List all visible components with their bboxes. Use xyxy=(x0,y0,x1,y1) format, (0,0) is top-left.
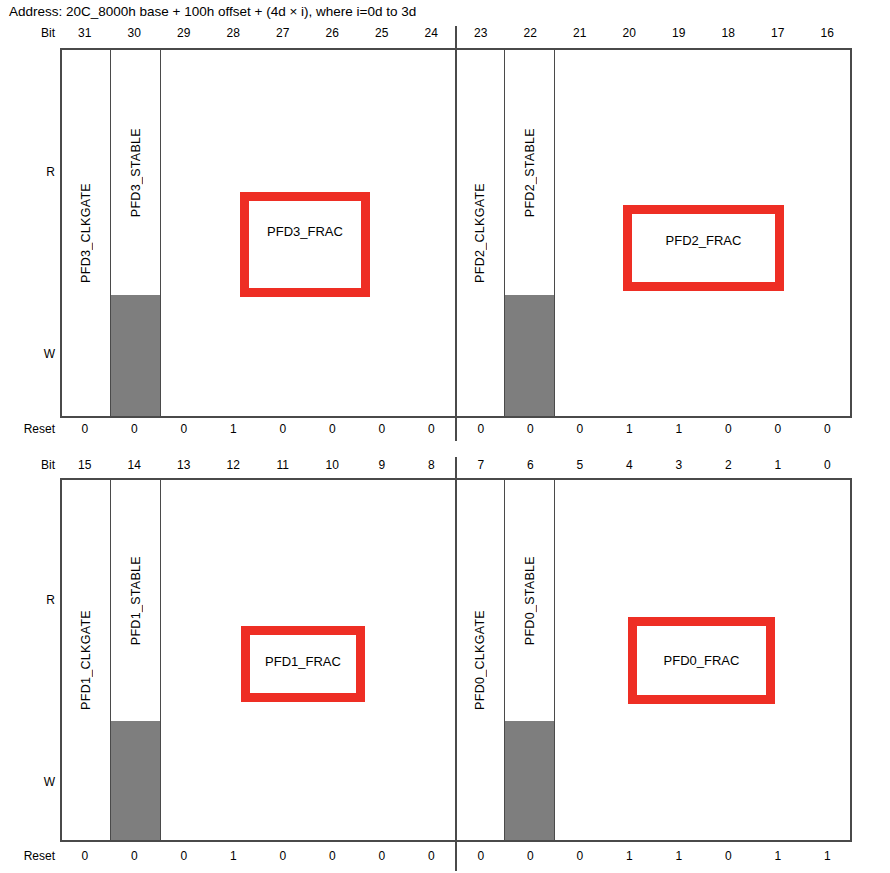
reset-row-label: Reset xyxy=(0,421,55,437)
reset-value: 0 xyxy=(60,848,110,864)
bit-number: 16 xyxy=(803,25,853,41)
register-bitfield-diagram: Address: 20C_8000h base + 100h offset + … xyxy=(0,0,890,873)
halfword-divider-upper xyxy=(455,26,457,441)
reset-value: 1 xyxy=(753,848,803,864)
reset-value: 1 xyxy=(803,848,853,864)
bit-number: 9 xyxy=(357,457,407,473)
clkgate-field-label: PFD1_CLKGATE xyxy=(79,610,93,710)
reset-value: 0 xyxy=(407,421,457,437)
reset-value: 0 xyxy=(159,421,209,437)
write-row-label: W xyxy=(0,347,55,361)
stable-cell: PFD1_STABLE xyxy=(111,480,161,840)
bit-number: 21 xyxy=(555,25,605,41)
address-line: Address: 20C_8000h base + 100h offset + … xyxy=(9,4,416,20)
bit-number: 7 xyxy=(456,457,506,473)
write-disabled-area xyxy=(111,721,160,840)
reset-value: 0 xyxy=(506,848,556,864)
reset-value: 0 xyxy=(555,848,605,864)
reset-value: 0 xyxy=(506,421,556,437)
reset-value: 0 xyxy=(456,421,506,437)
bit-number: 0 xyxy=(803,457,853,473)
register-half-pfd3: PFD3_CLKGATE PFD3_STABLE PFD3_FRAC xyxy=(62,50,456,416)
bit-number: 24 xyxy=(407,25,457,41)
bit-number: 4 xyxy=(605,457,655,473)
halfword-divider-lower xyxy=(455,457,457,871)
reset-value: 1 xyxy=(605,421,655,437)
reset-value: 0 xyxy=(407,848,457,864)
reset-value: 0 xyxy=(456,848,506,864)
frac-field-label: PFD1_FRAC xyxy=(265,654,341,669)
frac-field-area: PFD3_FRAC xyxy=(161,50,456,416)
read-row-label: R xyxy=(0,165,55,179)
bit-number: 23 xyxy=(456,25,506,41)
clkgate-field-label: PFD0_CLKGATE xyxy=(473,610,487,710)
stable-read-area: PFD1_STABLE xyxy=(111,480,160,721)
bit-number: 1 xyxy=(753,457,803,473)
register-half-pfd0: PFD0_CLKGATE PFD0_STABLE PFD0_FRAC xyxy=(456,480,850,840)
frac-highlight-box: PFD3_FRAC xyxy=(240,192,370,297)
reset-value: 0 xyxy=(357,848,407,864)
bit-number: 6 xyxy=(506,457,556,473)
bit-number: 28 xyxy=(209,25,259,41)
bit-row-label: Bit xyxy=(0,457,55,473)
reset-value: 0 xyxy=(110,421,160,437)
reset-value: 1 xyxy=(209,848,259,864)
stable-read-area: PFD2_STABLE xyxy=(505,50,554,295)
bit-number: 8 xyxy=(407,457,457,473)
bit-number: 11 xyxy=(258,457,308,473)
bit-number: 2 xyxy=(704,457,754,473)
frac-field-label: PFD3_FRAC xyxy=(267,224,343,239)
bit-number: 19 xyxy=(654,25,704,41)
bit-number: 3 xyxy=(654,457,704,473)
bit-number: 27 xyxy=(258,25,308,41)
frac-field-label: PFD2_FRAC xyxy=(666,233,742,248)
reset-value: 0 xyxy=(258,421,308,437)
reset-value: 0 xyxy=(803,421,853,437)
register-half-pfd2: PFD2_CLKGATE PFD2_STABLE PFD2_FRAC xyxy=(456,50,850,416)
frac-field-label: PFD0_FRAC xyxy=(664,653,740,668)
clkgate-field-label: PFD2_CLKGATE xyxy=(473,183,487,283)
reset-value: 0 xyxy=(60,421,110,437)
stable-cell: PFD3_STABLE xyxy=(111,50,161,416)
bit-number: 20 xyxy=(605,25,655,41)
stable-cell: PFD2_STABLE xyxy=(505,50,555,416)
frac-field-area: PFD0_FRAC xyxy=(555,480,850,840)
register-half-pfd1: PFD1_CLKGATE PFD1_STABLE PFD1_FRAC xyxy=(62,480,456,840)
bit-number: 17 xyxy=(753,25,803,41)
reset-value: 1 xyxy=(654,848,704,864)
clkgate-field-label: PFD3_CLKGATE xyxy=(79,183,93,283)
reset-value: 0 xyxy=(357,421,407,437)
stable-read-area: PFD3_STABLE xyxy=(111,50,160,295)
clkgate-cell: PFD0_CLKGATE xyxy=(456,480,505,840)
reset-value: 0 xyxy=(704,848,754,864)
stable-field-label: PFD0_STABLE xyxy=(523,556,537,645)
reset-value: 0 xyxy=(308,848,358,864)
bit-number: 30 xyxy=(110,25,160,41)
clkgate-cell: PFD3_CLKGATE xyxy=(62,50,111,416)
bit-number: 14 xyxy=(110,457,160,473)
clkgate-cell: PFD2_CLKGATE xyxy=(456,50,505,416)
write-disabled-area xyxy=(505,721,554,840)
stable-cell: PFD0_STABLE xyxy=(505,480,555,840)
bit-number: 29 xyxy=(159,25,209,41)
stable-field-label: PFD2_STABLE xyxy=(523,128,537,217)
reset-value: 0 xyxy=(308,421,358,437)
frac-field-area: PFD2_FRAC xyxy=(555,50,850,416)
reset-value: 1 xyxy=(654,421,704,437)
reset-value: 0 xyxy=(704,421,754,437)
read-row-label: R xyxy=(0,593,55,607)
bit-number: 15 xyxy=(60,457,110,473)
clkgate-cell: PFD1_CLKGATE xyxy=(62,480,111,840)
frac-field-area: PFD1_FRAC xyxy=(161,480,456,840)
bit-number: 18 xyxy=(704,25,754,41)
reset-value: 0 xyxy=(555,421,605,437)
bit-number: 5 xyxy=(555,457,605,473)
reset-value: 0 xyxy=(753,421,803,437)
bit-number: 12 xyxy=(209,457,259,473)
reset-row-label: Reset xyxy=(0,848,55,864)
frac-highlight-box: PFD2_FRAC xyxy=(623,205,784,291)
frac-highlight-box: PFD1_FRAC xyxy=(241,626,365,702)
reset-value: 1 xyxy=(209,421,259,437)
reset-value: 1 xyxy=(605,848,655,864)
frac-highlight-box: PFD0_FRAC xyxy=(628,617,775,704)
reset-value: 0 xyxy=(159,848,209,864)
bit-number: 13 xyxy=(159,457,209,473)
write-row-label: W xyxy=(0,775,55,789)
reset-value: 0 xyxy=(258,848,308,864)
write-disabled-area xyxy=(111,295,160,416)
write-disabled-area xyxy=(505,295,554,416)
bit-row-label: Bit xyxy=(0,25,55,41)
stable-read-area: PFD0_STABLE xyxy=(505,480,554,721)
bit-number: 25 xyxy=(357,25,407,41)
bit-number: 31 xyxy=(60,25,110,41)
stable-field-label: PFD3_STABLE xyxy=(129,128,143,217)
stable-field-label: PFD1_STABLE xyxy=(129,556,143,645)
reset-value: 0 xyxy=(110,848,160,864)
bit-number: 10 xyxy=(308,457,358,473)
bit-number: 26 xyxy=(308,25,358,41)
bit-number: 22 xyxy=(506,25,556,41)
